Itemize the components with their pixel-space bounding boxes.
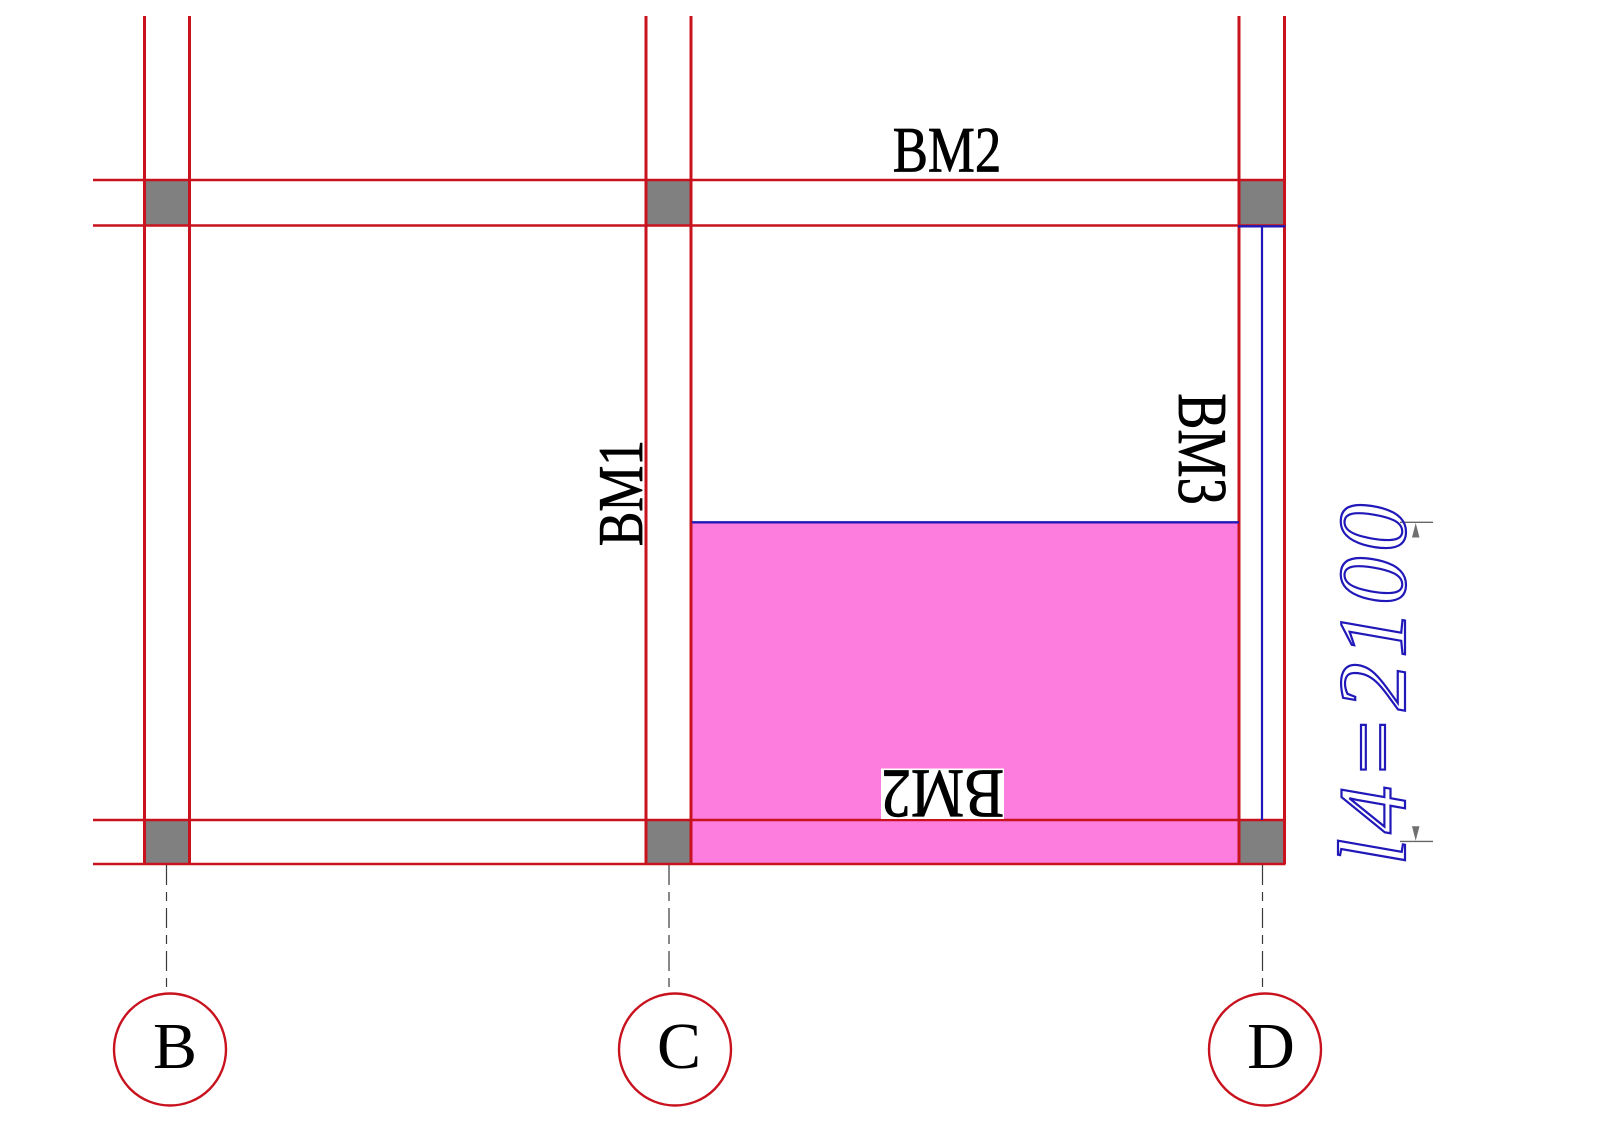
svg-text:BM2: BM2 (893, 113, 1002, 185)
svg-text:C: C (657, 1010, 701, 1083)
svg-text:BM3: BM3 (1163, 393, 1241, 505)
svg-text:BM1: BM1 (587, 440, 656, 546)
svg-text:B: B (153, 1010, 197, 1083)
svg-text:D: D (1247, 1010, 1295, 1083)
svg-text:BM2: BM2 (881, 754, 1004, 831)
svg-text:l4=2100: l4=2100 (1319, 499, 1426, 865)
